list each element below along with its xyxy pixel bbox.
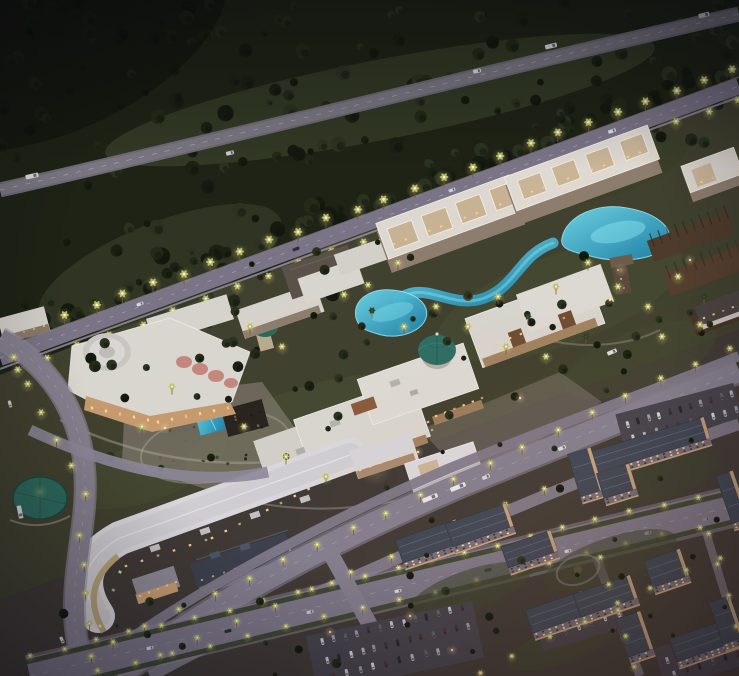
- scene-svg: [0, 0, 739, 676]
- atmosphere: [0, 0, 739, 676]
- aerial-render: [0, 0, 739, 676]
